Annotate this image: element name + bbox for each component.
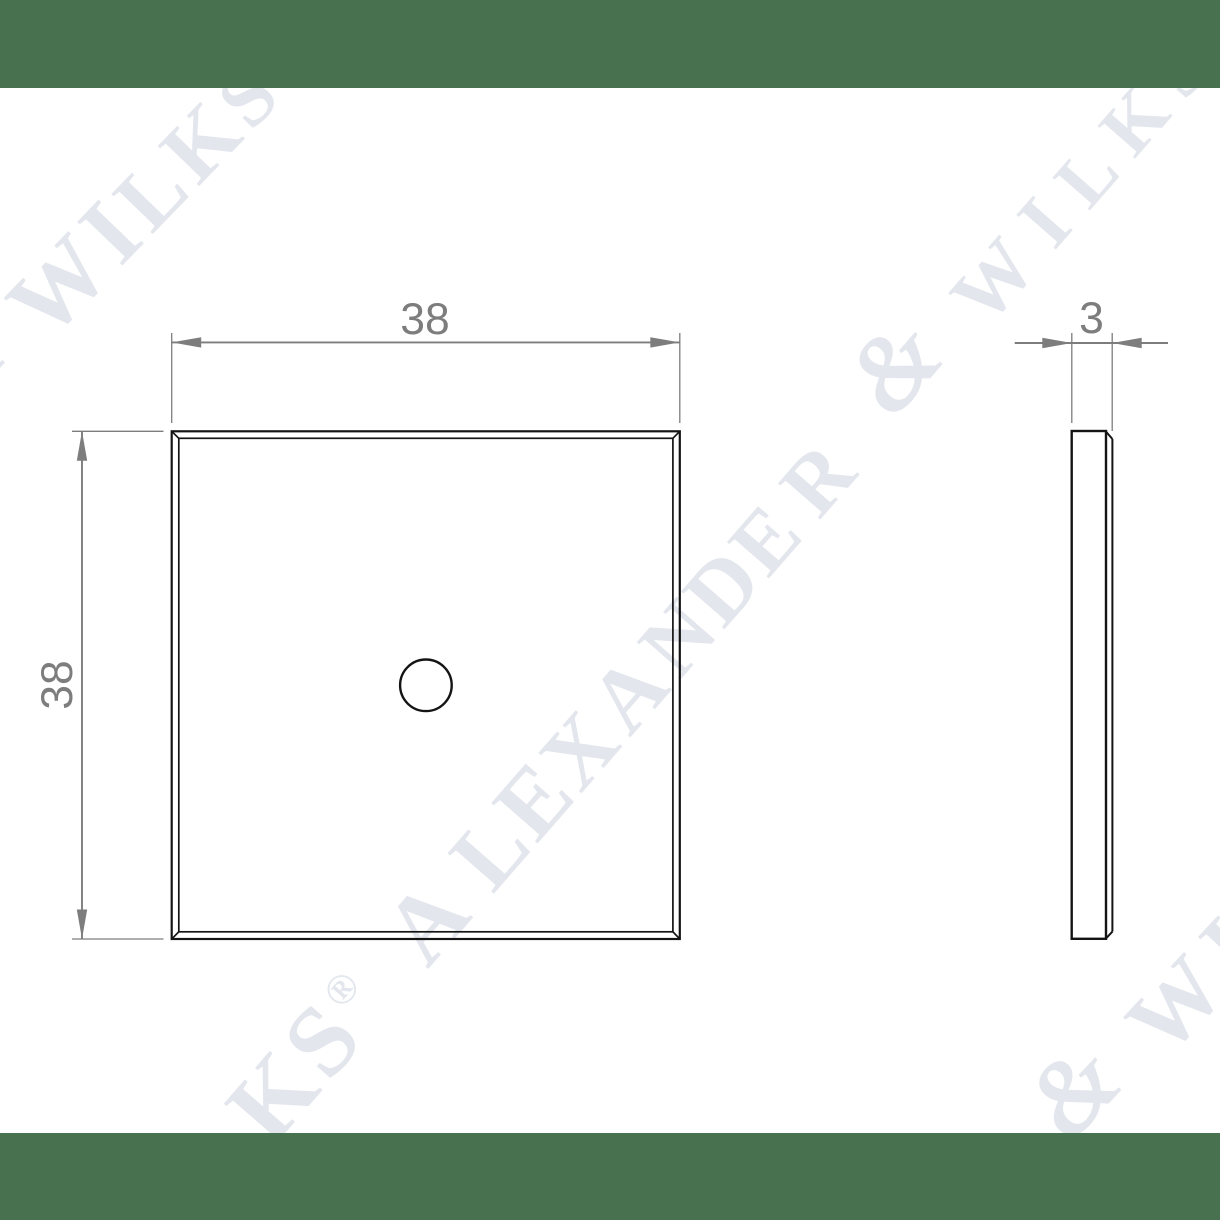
svg-text:KS® ALEXANDER & WILKS®: KS® ALEXANDER & WILKS® [194, 0, 1220, 1162]
svg-text:38: 38 [33, 660, 82, 710]
svg-text:3: 3 [1079, 294, 1104, 343]
svg-text:38: 38 [400, 295, 450, 344]
